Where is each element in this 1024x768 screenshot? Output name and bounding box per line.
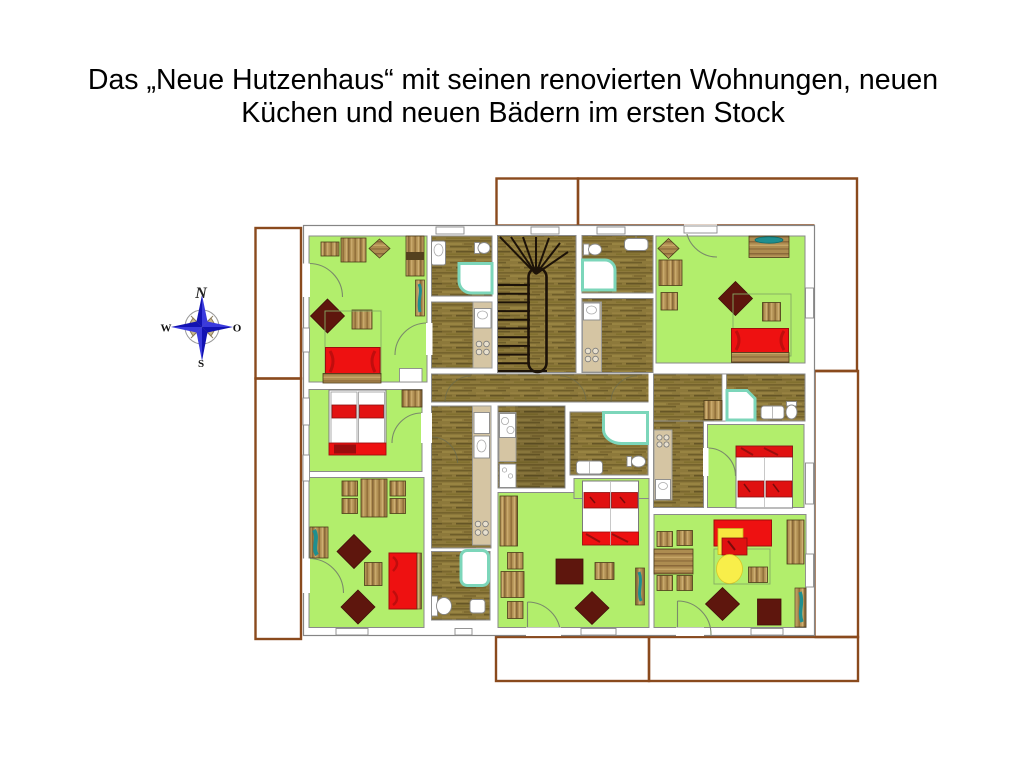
svg-text:Das „Neue Hutzenhaus“ mit sein: Das „Neue Hutzenhaus“ mit seinen renovie… bbox=[88, 64, 938, 96]
svg-text:Küchen und neuen Bädern im ers: Küchen und neuen Bädern im ersten Stock bbox=[241, 97, 785, 129]
svg-text:W: W bbox=[161, 323, 172, 335]
svg-text:N: N bbox=[194, 285, 208, 302]
svg-text:S: S bbox=[198, 358, 204, 370]
svg-text:O: O bbox=[233, 323, 242, 335]
